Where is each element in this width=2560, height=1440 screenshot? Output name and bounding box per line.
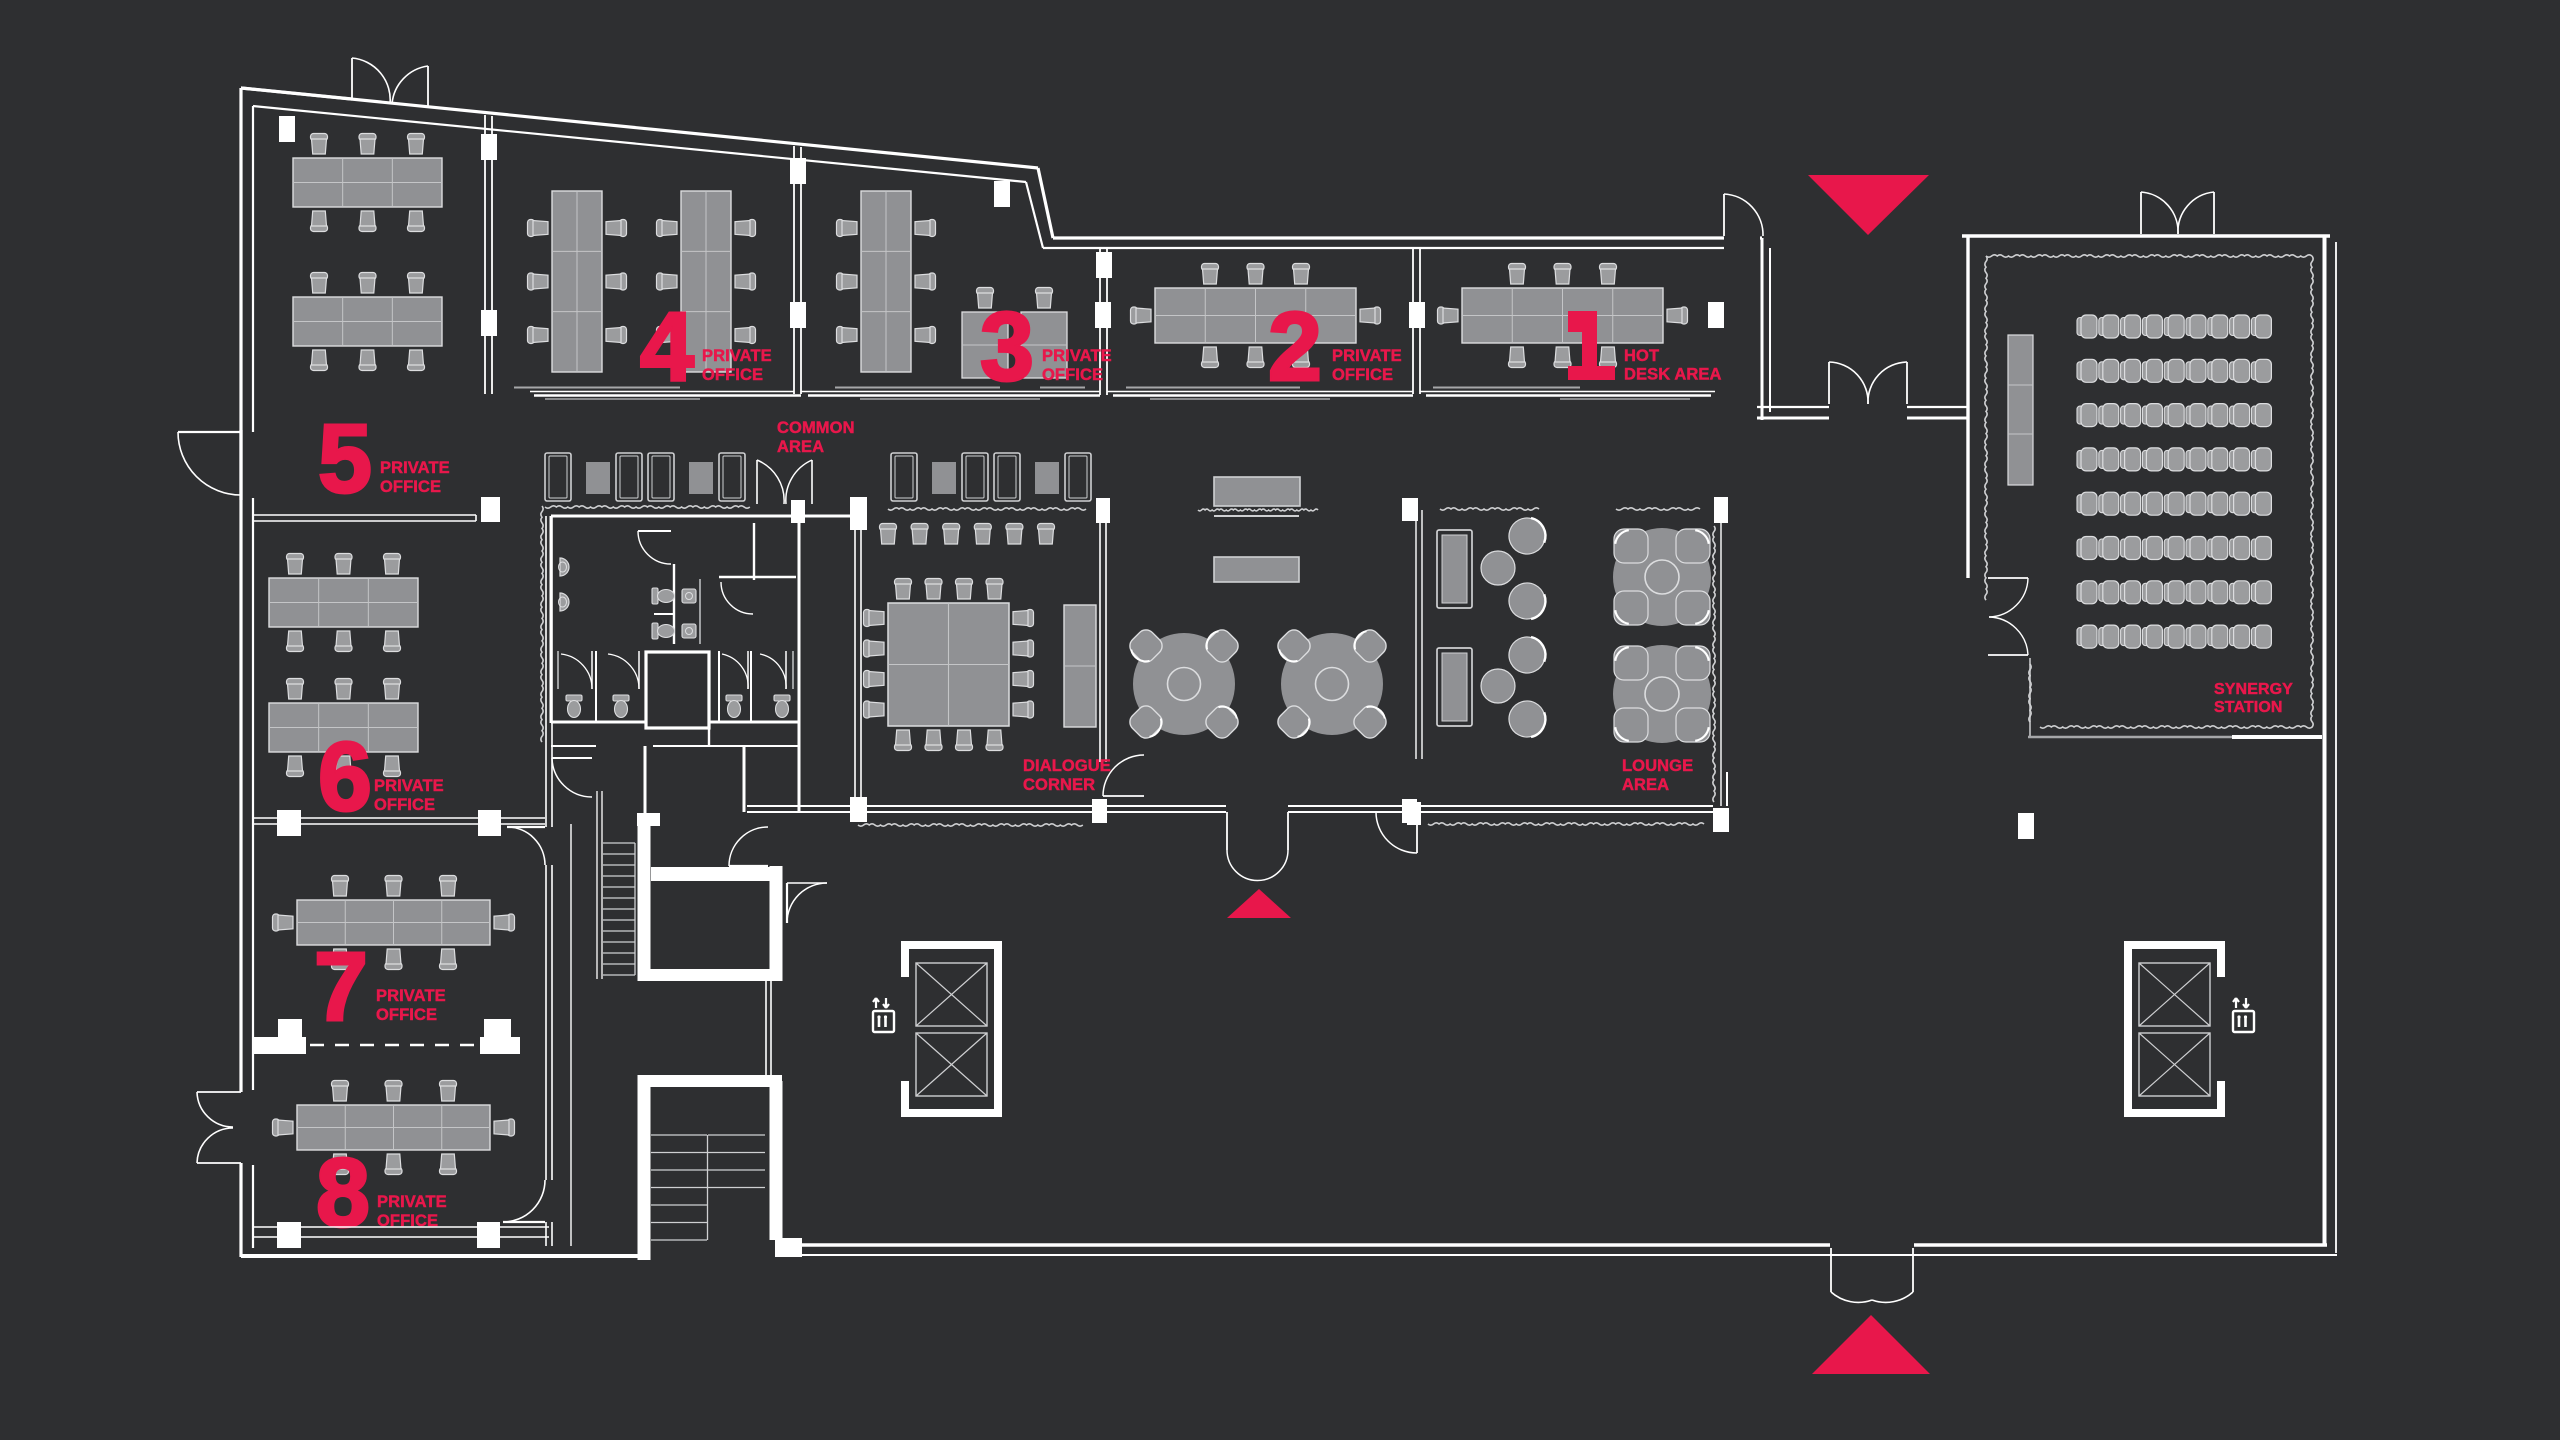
svg-text:PRIVATE: PRIVATE [1042,347,1112,365]
svg-text:3: 3 [980,292,1034,401]
svg-text:OFFICE: OFFICE [376,1006,437,1024]
svg-text:PRIVATE: PRIVATE [377,1193,447,1211]
svg-text:HOT: HOT [1624,347,1659,365]
svg-text:AREA: AREA [1622,776,1669,794]
svg-text:PRIVATE: PRIVATE [374,777,444,795]
svg-text:PRIVATE: PRIVATE [1332,347,1402,365]
svg-text:AREA: AREA [777,438,824,456]
svg-text:OFFICE: OFFICE [1332,366,1393,384]
svg-text:4: 4 [640,292,694,401]
svg-text:OFFICE: OFFICE [380,478,441,496]
svg-text:DESK AREA: DESK AREA [1624,366,1721,384]
svg-text:2: 2 [1268,292,1322,401]
svg-text:CORNER: CORNER [1023,776,1095,794]
svg-text:OFFICE: OFFICE [702,366,763,384]
svg-text:PRIVATE: PRIVATE [376,987,446,1005]
svg-text:5: 5 [318,404,372,513]
svg-text:COMMON: COMMON [777,419,855,437]
svg-text:STATION: STATION [2214,699,2283,716]
svg-text:DIALOGUE: DIALOGUE [1023,757,1111,775]
svg-text:7: 7 [314,932,368,1041]
svg-text:PRIVATE: PRIVATE [702,347,772,365]
svg-text:PRIVATE: PRIVATE [380,459,450,477]
svg-text:8: 8 [316,1138,370,1247]
svg-text:OFFICE: OFFICE [374,796,435,814]
svg-text:SYNERGY: SYNERGY [2214,681,2293,698]
svg-text:OFFICE: OFFICE [1042,366,1103,384]
svg-text:LOUNGE: LOUNGE [1622,757,1693,775]
svg-text:6: 6 [318,722,372,831]
